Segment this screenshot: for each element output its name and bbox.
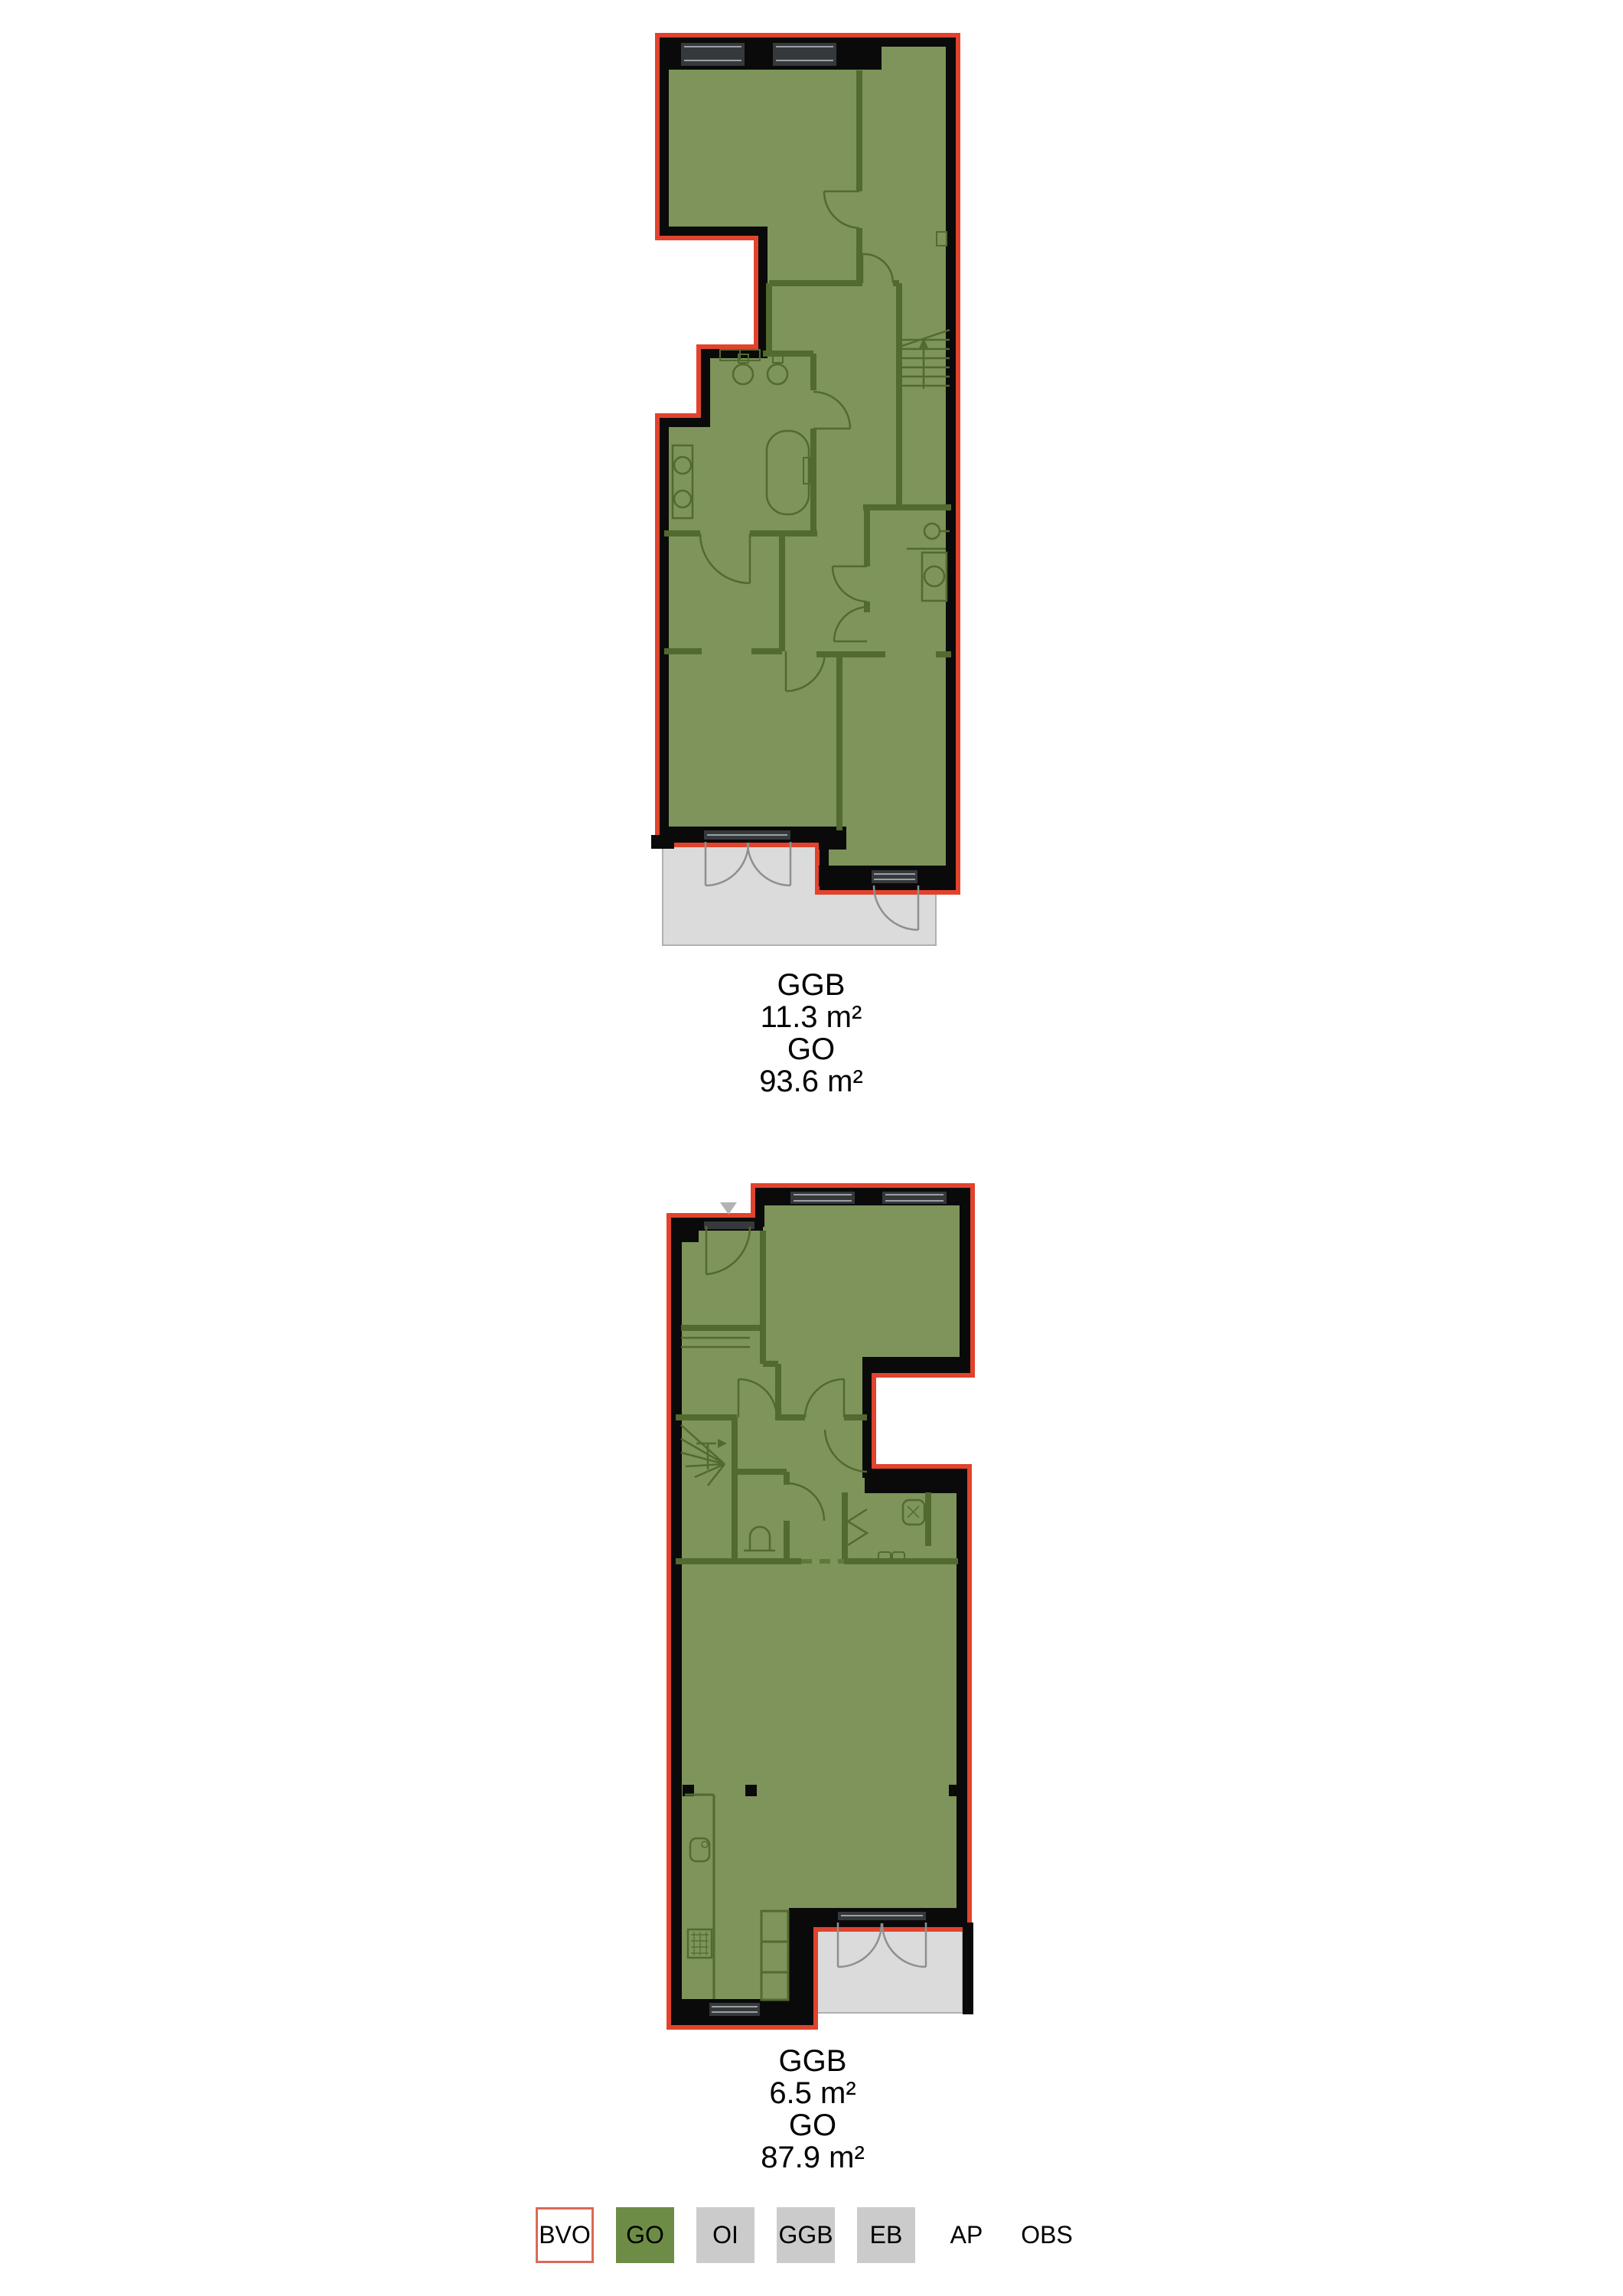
go-label: GO (694, 2109, 931, 2141)
legend-item-go: GO (616, 2207, 674, 2263)
legend-item-oi: OI (696, 2207, 754, 2263)
legend-item-ap: AP (937, 2207, 996, 2263)
legend-label: EB (870, 2221, 903, 2249)
legend-item-bvo: BVO (536, 2207, 594, 2263)
go-value: 93.6 m² (693, 1065, 930, 1097)
unit-outline (676, 1192, 966, 2020)
ggb-value: 6.5 m² (694, 2077, 931, 2109)
legend-label: BVO (539, 2221, 591, 2249)
legend-item-obs: OBS (1018, 2207, 1076, 2263)
lower-floor-plan (658, 1179, 995, 2036)
structural-column (745, 1785, 757, 1796)
ggb-label: GGB (693, 969, 930, 1001)
ggb-value: 11.3 m² (693, 1001, 930, 1033)
upper-floor-plan (643, 27, 972, 960)
legend-label: GGB (778, 2221, 833, 2249)
legend-label: GO (626, 2221, 664, 2249)
legend-label: AP (950, 2221, 983, 2249)
structural-column (949, 1785, 959, 1796)
legend-label: OI (712, 2221, 738, 2249)
go-label: GO (693, 1033, 930, 1065)
legend-item-eb: EB (857, 2207, 915, 2263)
unit-outline (664, 42, 951, 885)
legend: BVO GO OI GGB EB AP OBS (536, 2207, 1076, 2263)
entrance-triangle-icon (720, 1202, 737, 1215)
legend-label: OBS (1021, 2221, 1073, 2249)
lower-plan-area-labels: GGB 6.5 m² GO 87.9 m² (694, 2045, 931, 2174)
terrace-ggb-area (809, 1923, 963, 2013)
ggb-label: GGB (694, 2045, 931, 2077)
page: GGB 11.3 m² GO 93.6 m² (0, 0, 1623, 2296)
upper-plan-area-labels: GGB 11.3 m² GO 93.6 m² (693, 969, 930, 1097)
legend-item-ggb: GGB (777, 2207, 835, 2263)
go-value: 87.9 m² (694, 2141, 931, 2174)
